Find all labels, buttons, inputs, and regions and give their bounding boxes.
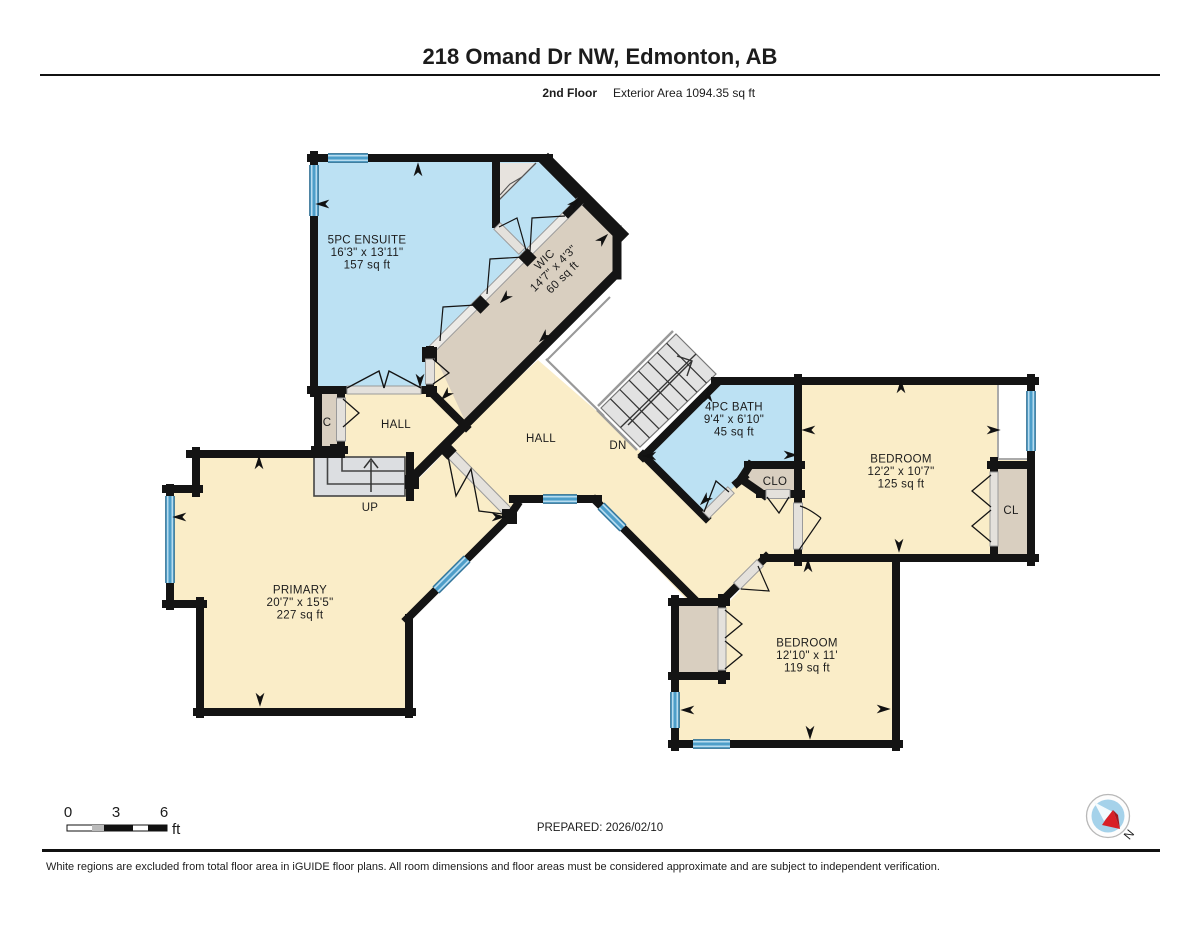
svg-text:DN: DN (609, 440, 626, 452)
svg-text:C: C (323, 417, 332, 429)
svg-text:PRIMARY: PRIMARY (273, 584, 327, 596)
svg-text:6: 6 (160, 804, 168, 821)
svg-text:HALL: HALL (381, 419, 411, 431)
svg-text:4PC BATH: 4PC BATH (705, 401, 763, 413)
svg-text:BEDROOM: BEDROOM (776, 637, 838, 649)
svg-text:0: 0 (64, 804, 72, 821)
svg-text:5PC ENSUITE: 5PC ENSUITE (328, 234, 407, 246)
svg-text:125 sq ft: 125 sq ft (878, 479, 925, 491)
svg-text:PREPARED: 2026/02/10: PREPARED: 2026/02/10 (537, 822, 663, 834)
svg-text:ft: ft (172, 821, 181, 838)
svg-text:N: N (1121, 827, 1137, 843)
svg-text:BEDROOM: BEDROOM (870, 453, 932, 465)
svg-text:9'4" x 6'10": 9'4" x 6'10" (704, 414, 764, 426)
svg-text:227 sq ft: 227 sq ft (277, 610, 324, 622)
svg-text:White regions are excluded fro: White regions are excluded from total fl… (46, 861, 940, 873)
svg-text:12'2" x 10'7": 12'2" x 10'7" (868, 466, 935, 478)
svg-text:3: 3 (112, 804, 120, 821)
svg-text:16'3" x 13'11": 16'3" x 13'11" (331, 247, 404, 259)
svg-text:CL: CL (1003, 505, 1019, 517)
svg-text:HALL: HALL (526, 433, 556, 445)
svg-text:119 sq ft: 119 sq ft (784, 663, 830, 675)
svg-text:UP: UP (362, 502, 379, 514)
svg-text:20'7" x 15'5": 20'7" x 15'5" (267, 597, 334, 609)
svg-text:Exterior Area 1094.35 sq ft: Exterior Area 1094.35 sq ft (613, 86, 756, 100)
svg-text:45 sq ft: 45 sq ft (714, 427, 755, 439)
svg-text:157 sq ft: 157 sq ft (344, 260, 391, 272)
svg-text:12'10" x 11': 12'10" x 11' (776, 650, 838, 662)
svg-text:218 Omand Dr NW, Edmonton, AB: 218 Omand Dr NW, Edmonton, AB (423, 44, 778, 69)
svg-text:CLO: CLO (763, 476, 788, 488)
svg-text:2nd Floor: 2nd Floor (542, 86, 597, 100)
